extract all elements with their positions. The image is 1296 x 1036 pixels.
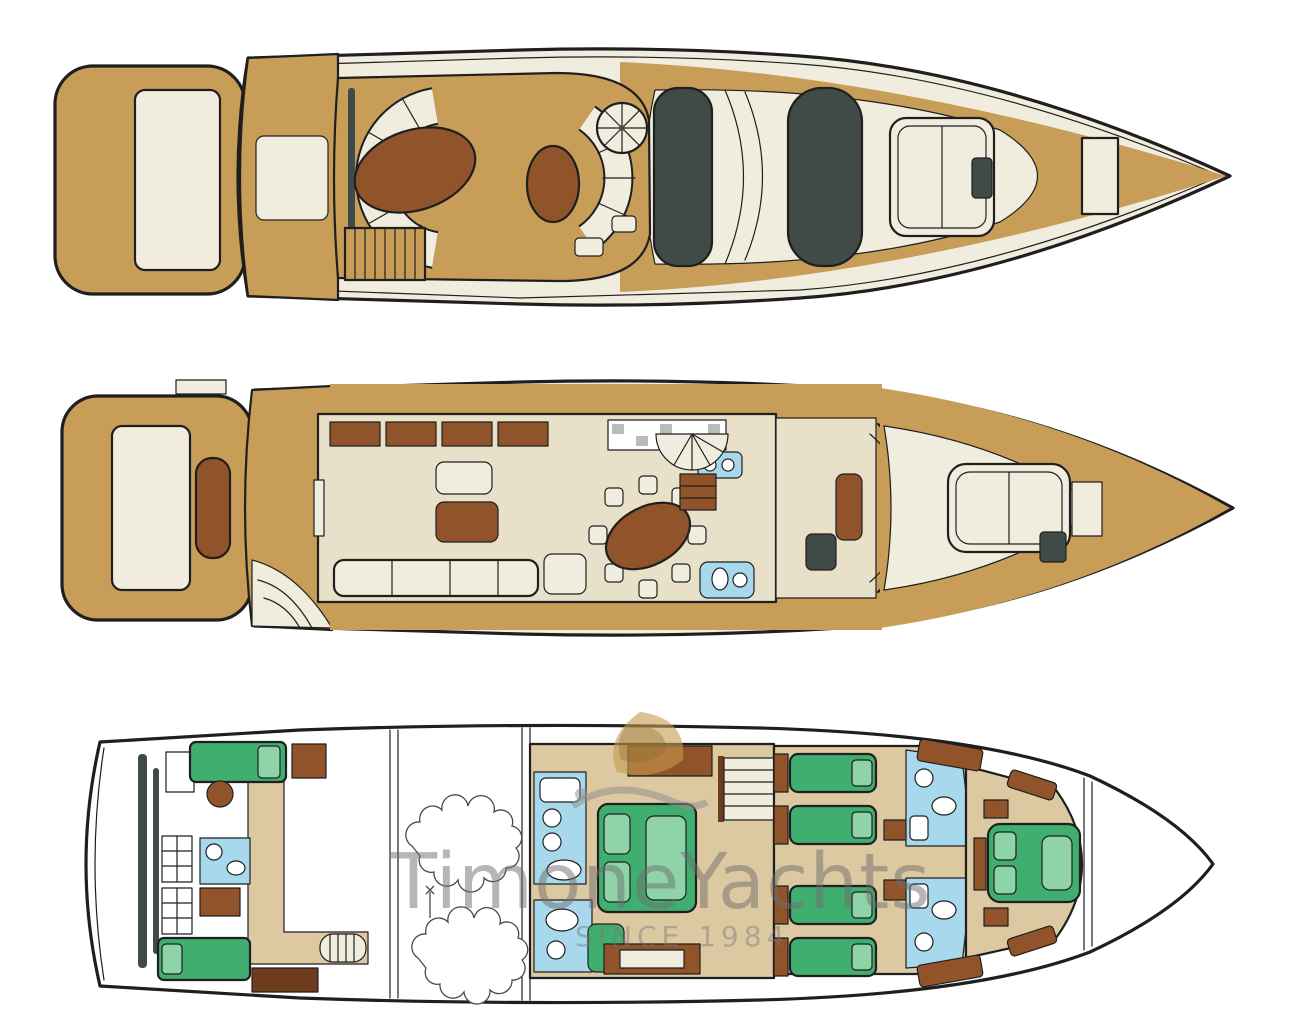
helm-seat	[806, 534, 836, 570]
crew-bathroom	[200, 838, 250, 884]
anchor-locker-hatch	[1082, 138, 1118, 214]
crew-table	[207, 781, 233, 807]
windlass	[1040, 532, 1066, 562]
salon-sofa	[334, 560, 538, 596]
flybridge-deck-plan	[0, 0, 1296, 350]
stool	[612, 216, 636, 232]
stair-landing	[252, 968, 318, 992]
coffee-table	[436, 502, 498, 542]
mast	[348, 88, 355, 238]
sunroof-panel-aft	[654, 88, 712, 266]
watermark-tagline: SINCE 1984	[575, 920, 789, 953]
watermark-brand: TimoneYachts	[390, 838, 931, 927]
helm-console	[836, 474, 862, 540]
stool	[575, 238, 603, 256]
flybridge-lounger	[345, 228, 425, 280]
anchor-locker-hatch	[1072, 482, 1102, 536]
armchair	[544, 554, 586, 594]
day-head	[700, 562, 754, 598]
watermark-logo sail-and-wave-icon	[555, 698, 725, 838]
windlass	[972, 158, 992, 198]
armchair	[436, 462, 492, 494]
main-deck-plan	[0, 350, 1296, 700]
sunroof-panel-fwd	[788, 88, 862, 266]
crew-wardrobe	[292, 744, 326, 778]
bar-counter	[527, 146, 579, 222]
spiral-staircase	[597, 103, 647, 153]
yacht-deck-plan-canvas: TimoneYachts SINCE 1984	[0, 0, 1296, 1036]
crew-dresser	[200, 888, 240, 916]
crew-stairs	[320, 934, 366, 962]
transom-seat	[196, 458, 230, 558]
salon-aft-door	[314, 480, 324, 536]
